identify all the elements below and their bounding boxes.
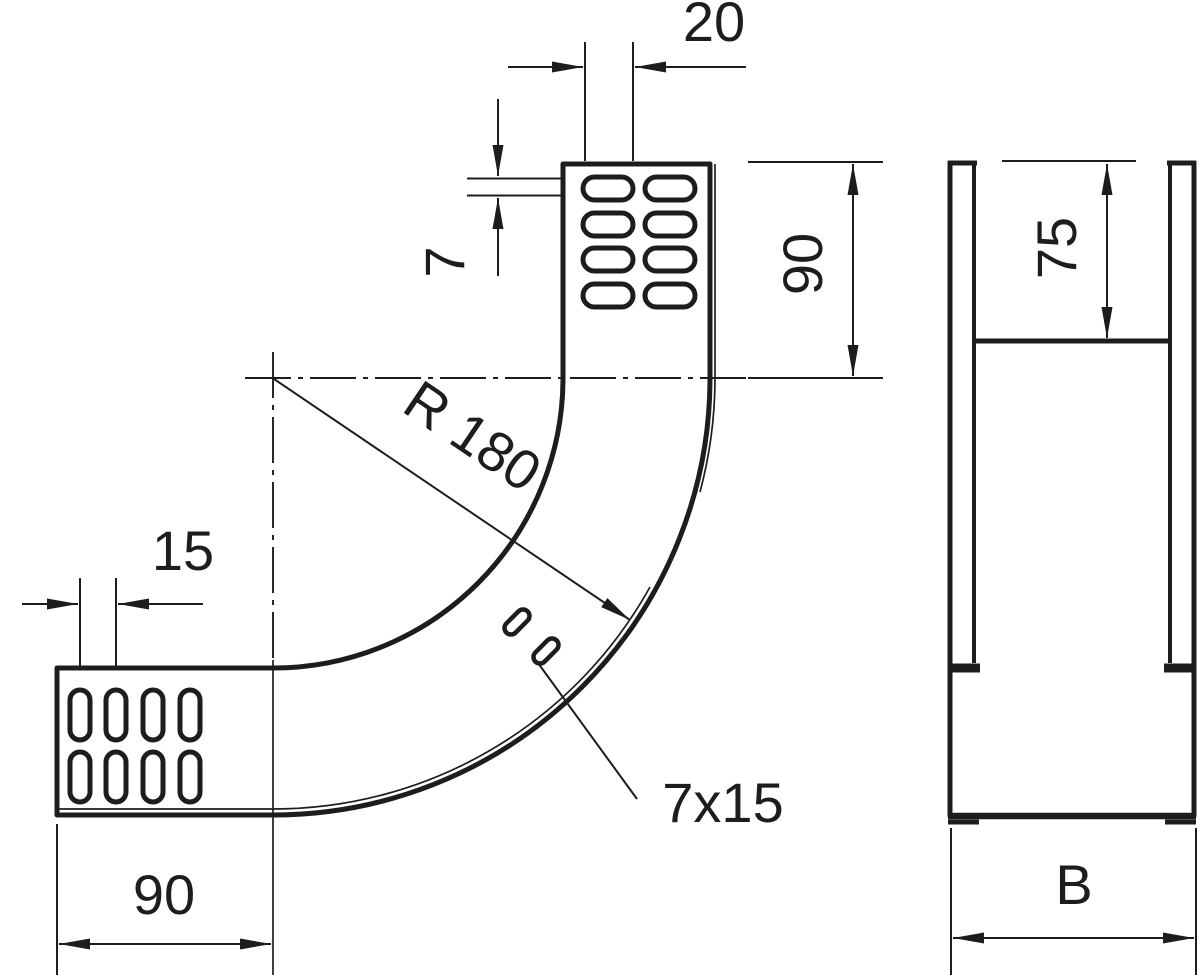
dim-horizontal-leg: 90 — [57, 824, 271, 975]
slot — [70, 690, 90, 740]
slot — [583, 248, 633, 271]
drawing-sheet: 20 7 90 75 — [0, 0, 1200, 975]
slot — [583, 284, 633, 307]
dim-slot-pitch: 15 — [22, 519, 214, 666]
slot — [180, 752, 200, 802]
dim-vertical-leg: 90 — [748, 162, 883, 378]
slot — [143, 752, 163, 802]
top-leg-slots — [583, 177, 695, 307]
slot — [180, 690, 200, 740]
slot — [531, 636, 561, 666]
dim-label: 20 — [683, 0, 745, 53]
dim-label: 7x15 — [662, 771, 783, 834]
dim-bend-radius: R 180 — [274, 368, 630, 620]
slot — [645, 284, 695, 307]
slot — [502, 607, 532, 637]
slot — [70, 752, 90, 802]
slot — [583, 213, 633, 236]
slot — [143, 690, 163, 740]
bend-slots — [502, 607, 561, 666]
slot — [583, 177, 633, 200]
label-slot-size: 7x15 — [538, 663, 784, 834]
slot — [645, 213, 695, 236]
dim-label: B — [1055, 853, 1092, 916]
dimensions: 20 7 90 75 — [22, 0, 1196, 975]
slot — [645, 248, 695, 271]
dim-label: 90 — [771, 233, 834, 295]
dim-label: 7 — [413, 246, 476, 277]
dim-slot-length-top: 20 — [508, 0, 746, 161]
dim-label: 15 — [152, 519, 214, 582]
dim-side-rail-height: 75 — [1002, 161, 1136, 338]
bottom-leg-slots — [70, 690, 200, 802]
dim-label: R 180 — [393, 368, 552, 504]
slot — [106, 690, 126, 740]
dim-slot-width: 7 — [413, 99, 562, 278]
sheet-edge-inner — [57, 587, 650, 809]
bend-outline — [57, 164, 710, 815]
dim-label: 90 — [133, 863, 195, 926]
slot — [645, 177, 695, 200]
dim-label: 75 — [1025, 217, 1088, 279]
technical-drawing: 20 7 90 75 — [0, 0, 1200, 975]
dim-width-b: B — [951, 828, 1196, 975]
slot — [106, 752, 126, 802]
